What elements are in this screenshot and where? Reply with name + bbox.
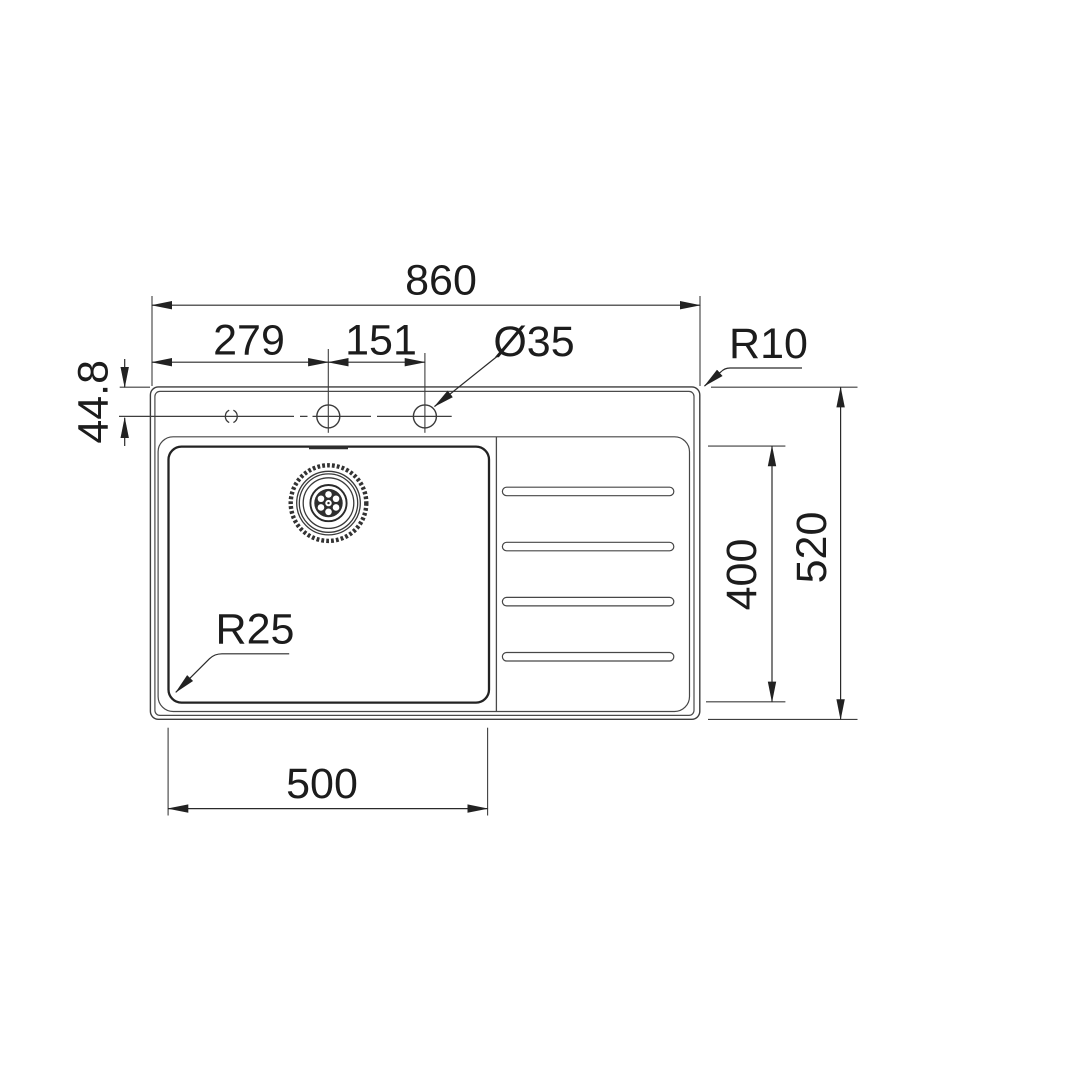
svg-text:151: 151 bbox=[345, 317, 417, 365]
svg-text:500: 500 bbox=[286, 760, 358, 808]
svg-text:44.8: 44.8 bbox=[70, 360, 118, 444]
svg-text:279: 279 bbox=[213, 317, 285, 365]
svg-text:R25: R25 bbox=[216, 606, 295, 654]
svg-text:R10: R10 bbox=[729, 320, 808, 368]
svg-text:860: 860 bbox=[405, 257, 477, 305]
svg-text:400: 400 bbox=[718, 539, 766, 611]
svg-text:Ø35: Ø35 bbox=[493, 318, 574, 366]
svg-text:520: 520 bbox=[788, 512, 836, 584]
